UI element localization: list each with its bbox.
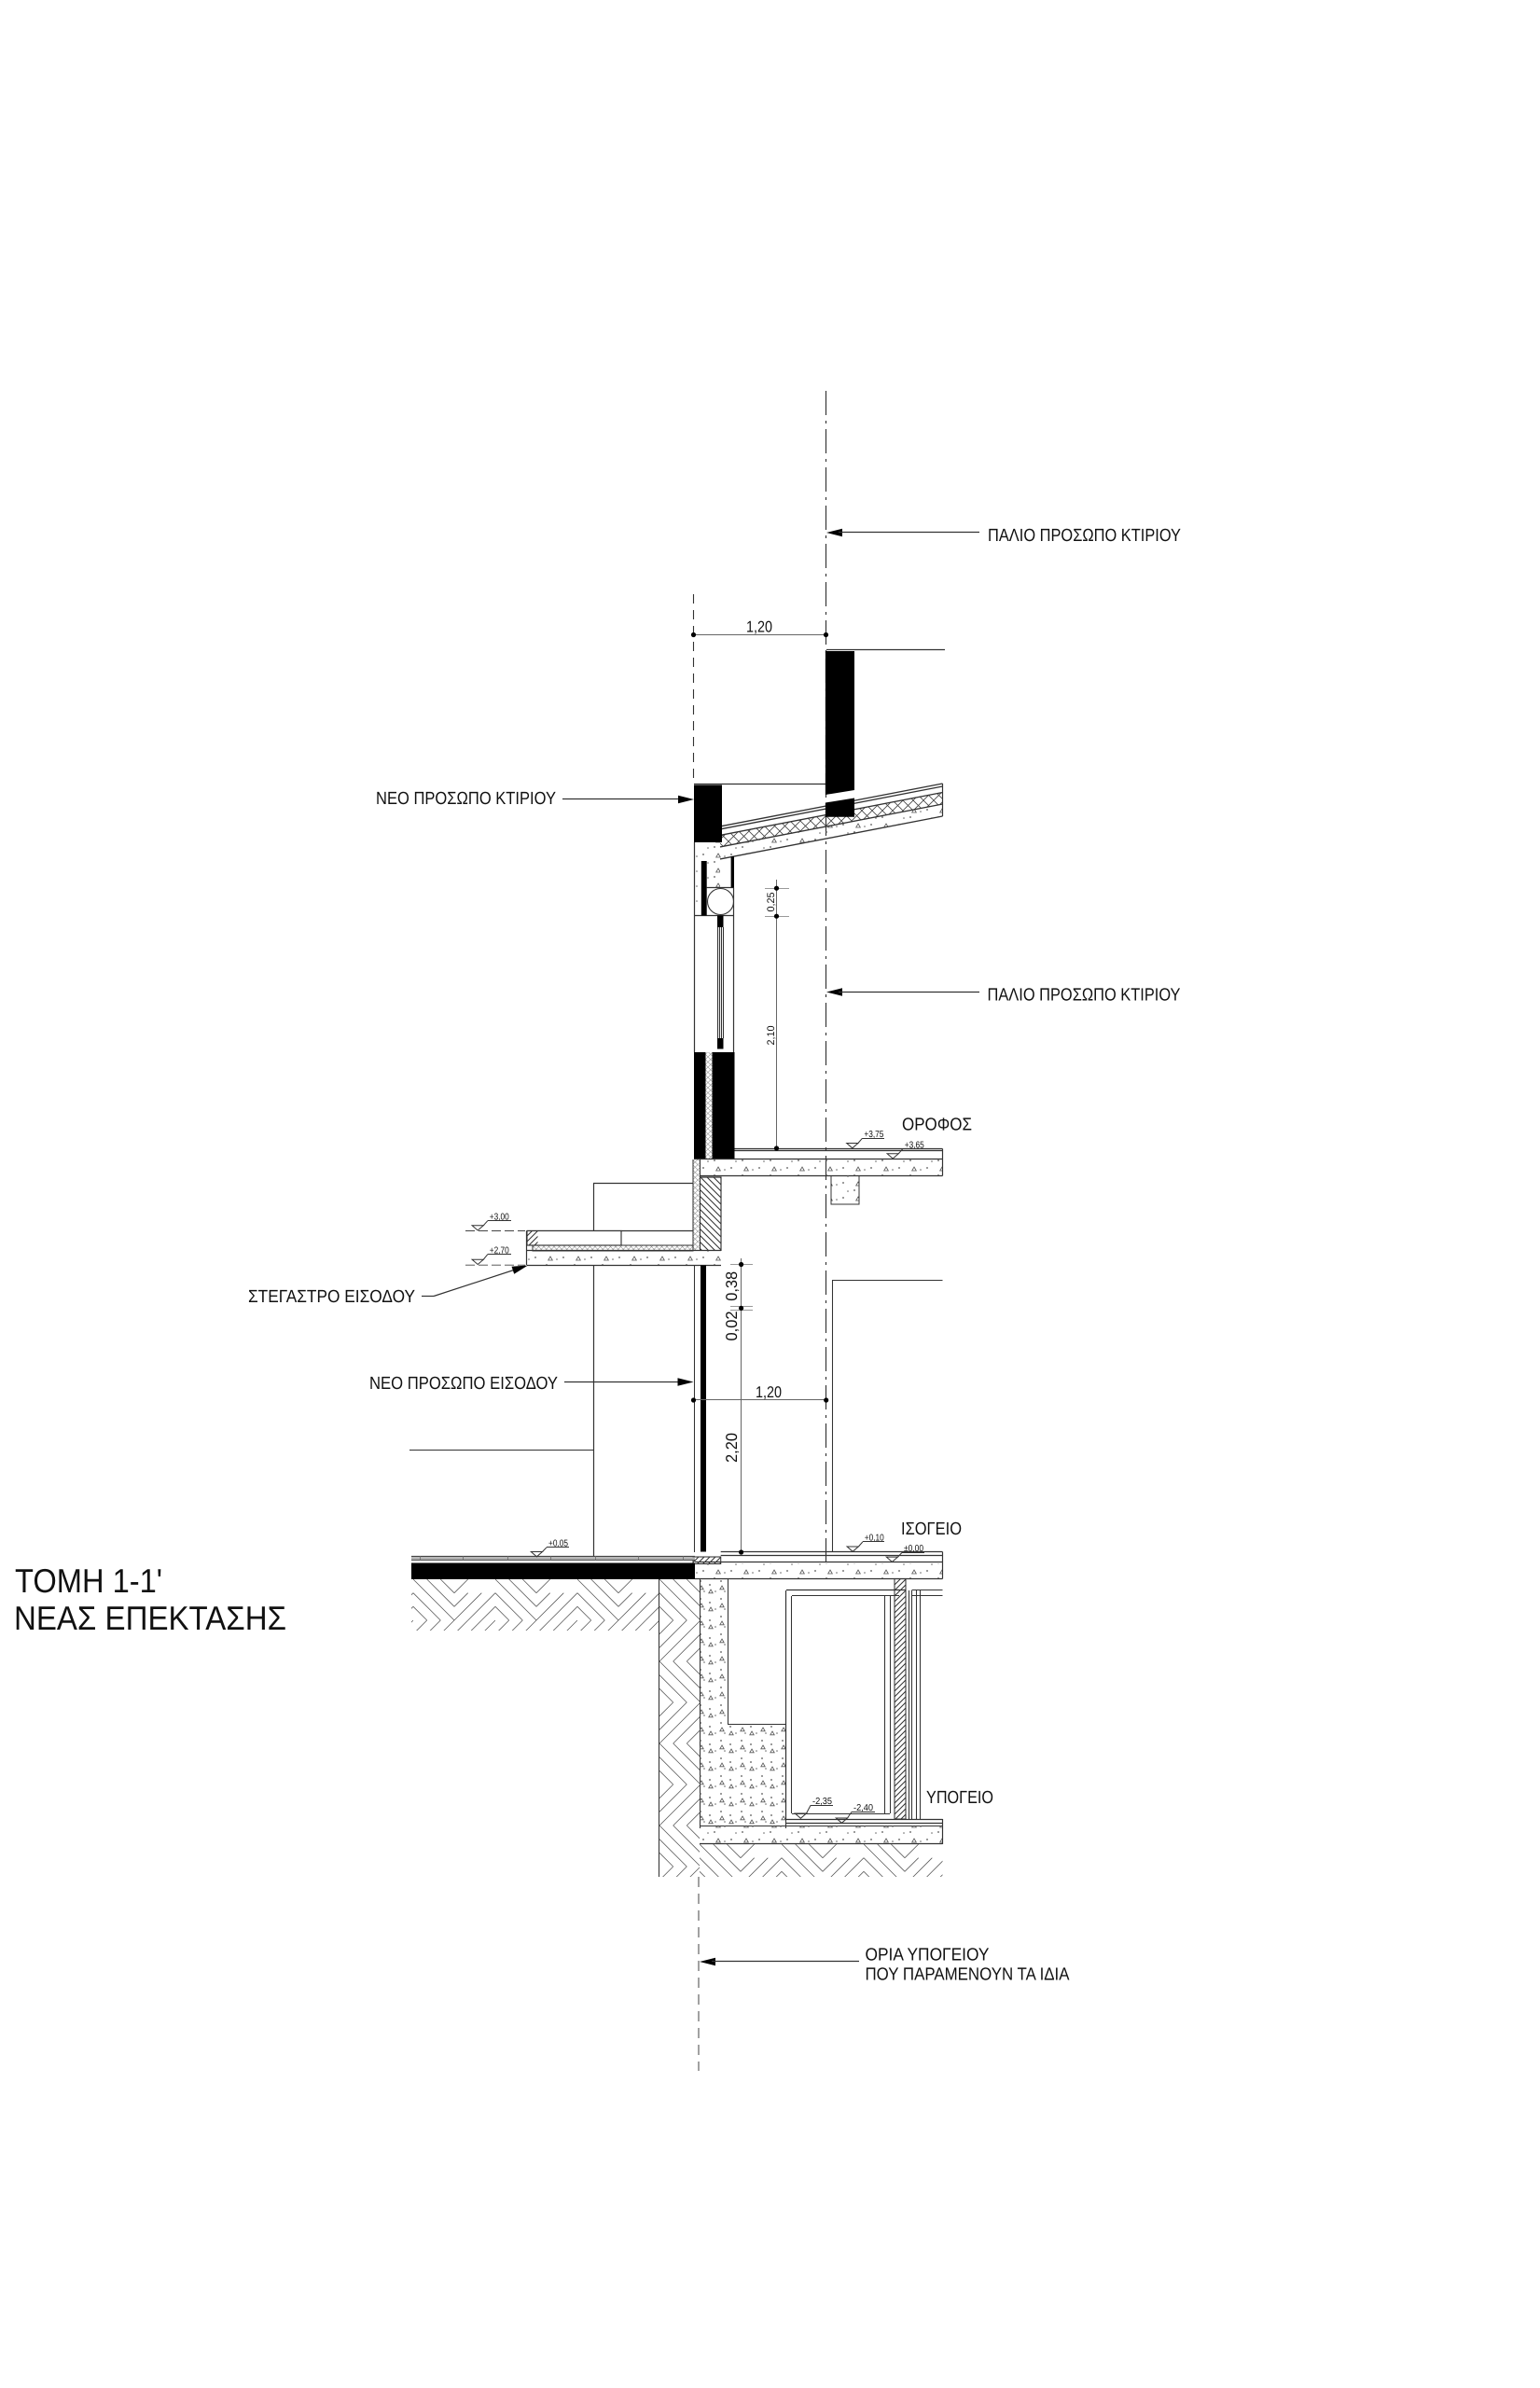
svg-text:ΠΑΛΙΟ ΠΡΟΣΩΠΟ ΚΤΙΡΙΟΥ: ΠΑΛΙΟ ΠΡΟΣΩΠΟ ΚΤΙΡΙΟΥ <box>988 526 1181 546</box>
svg-text:1,20: 1,20 <box>756 1383 782 1401</box>
svg-text:ΥΠΟΓΕΙΟ: ΥΠΟΓΕΙΟ <box>926 1788 993 1808</box>
svg-text:ΙΣΟΓΕΙΟ: ΙΣΟΓΕΙΟ <box>901 1520 962 1539</box>
svg-text:2,10: 2,10 <box>766 1026 777 1046</box>
svg-text:ΠΟΥ ΠΑΡΑΜΕΝΟΥΝ ΤΑ ΙΔΙΑ: ΠΟΥ ΠΑΡΑΜΕΝΟΥΝ ΤΑ ΙΔΙΑ <box>866 1965 1070 1985</box>
svg-text:ΝΕΟ ΠΡΟΣΩΠΟ ΚΤΙΡΙΟΥ: ΝΕΟ ΠΡΟΣΩΠΟ ΚΤΙΡΙΟΥ <box>376 789 556 809</box>
svg-text:ΟΡΙΑ ΥΠΟΓΕΙΟΥ: ΟΡΙΑ ΥΠΟΓΕΙΟΥ <box>866 1946 990 1965</box>
svg-text:ΝΕΑΣ ΕΠΕΚΤΑΣΗΣ: ΝΕΑΣ ΕΠΕΚΤΑΣΗΣ <box>14 1599 286 1637</box>
svg-text:ΟΡΟΦΟΣ: ΟΡΟΦΟΣ <box>902 1116 972 1135</box>
svg-text:ΣΤΕΓΑΣΤΡΟ ΕΙΣΟΔΟΥ: ΣΤΕΓΑΣΤΡΟ ΕΙΣΟΔΟΥ <box>248 1287 415 1307</box>
svg-text:ΠΑΛΙΟ ΠΡΟΣΩΠΟ ΚΤΙΡΙΟΥ: ΠΑΛΙΟ ΠΡΟΣΩΠΟ ΚΤΙΡΙΟΥ <box>988 986 1181 1006</box>
svg-text:0,38: 0,38 <box>723 1271 741 1301</box>
svg-text:0,25: 0,25 <box>766 893 777 912</box>
svg-text:1,20: 1,20 <box>746 618 772 636</box>
svg-text:ΝΕΟ ΠΡΟΣΩΠΟ ΕΙΣΟΔΟΥ: ΝΕΟ ΠΡΟΣΩΠΟ ΕΙΣΟΔΟΥ <box>369 1374 558 1394</box>
svg-text:2,20: 2,20 <box>723 1433 741 1463</box>
svg-text:0,02: 0,02 <box>723 1312 741 1341</box>
svg-text:ΤΟΜΗ 1-1': ΤΟΜΗ 1-1' <box>15 1562 162 1600</box>
